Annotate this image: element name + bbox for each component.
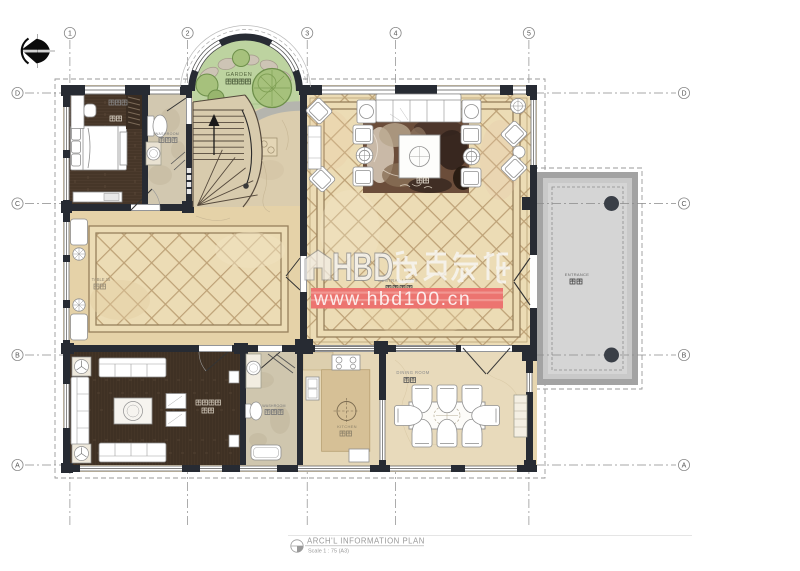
svg-text:C: C [681,201,686,208]
svg-text:D: D [15,91,20,98]
svg-text:HBD: HBD [332,245,393,290]
svg-text:DINING ROOM: DINING ROOM [396,370,429,375]
svg-text:A: A [15,463,20,470]
svg-text:B: B [682,353,687,360]
svg-text:TABLE 15: TABLE 15 [92,277,111,282]
svg-text:ENTRANCE: ENTRANCE [565,272,589,277]
svg-text:WASHROOM: WASHROOM [262,404,285,408]
svg-text:C: C [15,201,20,208]
svg-text:Scale 1 : 75 (A3): Scale 1 : 75 (A3) [308,549,349,555]
svg-text:A: A [682,463,687,470]
svg-text:B: B [15,353,20,360]
svg-text:ARCH'L INFORMATION PLAN: ARCH'L INFORMATION PLAN [307,537,425,546]
svg-text:D: D [681,91,686,98]
svg-text:5: 5 [527,31,531,38]
svg-text:1: 1 [68,31,72,38]
svg-text:2: 2 [186,31,190,38]
svg-text:KITCHEN: KITCHEN [337,424,357,429]
svg-text:GARDEN: GARDEN [226,72,253,78]
svg-text:www.hbd100.cn: www.hbd100.cn [313,288,471,310]
svg-text:4: 4 [394,31,398,38]
svg-text:WASHROOM: WASHROOM [155,132,179,136]
svg-text:3: 3 [305,31,309,38]
